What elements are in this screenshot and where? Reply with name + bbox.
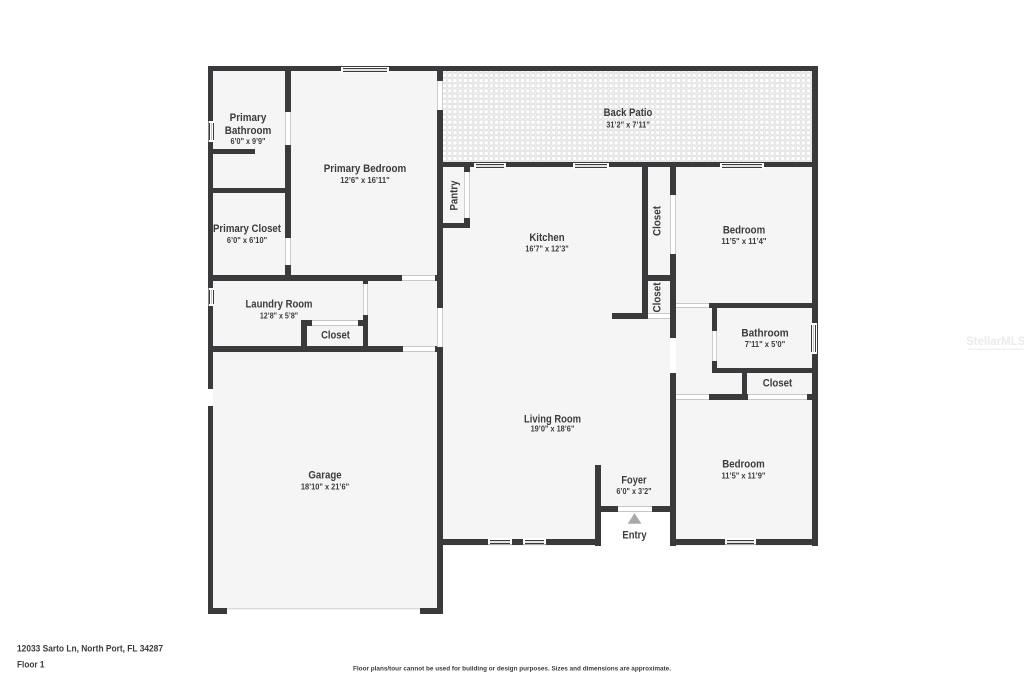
svg-text:Foyer: Foyer xyxy=(621,475,646,487)
svg-text:6’0" x 9’9": 6’0" x 9’9" xyxy=(231,137,266,146)
svg-text:Primary Bedroom: Primary Bedroom xyxy=(324,163,407,175)
svg-text:Bedroom: Bedroom xyxy=(723,225,765,237)
svg-text:31’2" x 7’11": 31’2" x 7’11" xyxy=(606,121,650,130)
svg-text:Closet: Closet xyxy=(763,378,793,390)
svg-text:StellarMLS: StellarMLS xyxy=(966,336,1024,348)
svg-text:Bathroom: Bathroom xyxy=(741,328,788,340)
svg-text:Bathroom: Bathroom xyxy=(225,125,272,137)
svg-text:6’0" x 3’2": 6’0" x 3’2" xyxy=(616,487,651,496)
svg-text:12’8" x 5’8": 12’8" x 5’8" xyxy=(260,312,298,321)
svg-text:Pantry: Pantry xyxy=(448,180,460,210)
svg-text:Bedroom: Bedroom xyxy=(722,459,764,471)
svg-text:16’7" x 12’3": 16’7" x 12’3" xyxy=(525,245,569,254)
svg-text:7’11" x 5’0": 7’11" x 5’0" xyxy=(745,340,786,349)
svg-text:Kitchen: Kitchen xyxy=(529,232,564,244)
svg-text:Closet: Closet xyxy=(652,206,664,236)
svg-text:12033 Sarto Ln, North Port, FL: 12033 Sarto Ln, North Port, FL 34287 xyxy=(17,644,163,654)
svg-text:Closet: Closet xyxy=(321,330,350,342)
svg-text:Primary: Primary xyxy=(230,112,267,124)
svg-text:19’0" x 18’6": 19’0" x 18’6" xyxy=(531,425,575,434)
svg-text:Back Patio: Back Patio xyxy=(604,107,653,119)
svg-text:Laundry Room: Laundry Room xyxy=(246,299,313,311)
svg-text:11’5" x 11’4": 11’5" x 11’4" xyxy=(721,237,766,246)
svg-text:Closet: Closet xyxy=(652,282,664,312)
svg-text:18’10" x 21’6": 18’10" x 21’6" xyxy=(301,483,349,492)
svg-text:6’0" x 6’10": 6’0" x 6’10" xyxy=(227,236,267,245)
svg-text:Entry: Entry xyxy=(622,530,646,542)
svg-text:Floor plans/tour cannot be use: Floor plans/tour cannot be used for buil… xyxy=(353,666,671,673)
svg-text:Primary Closet: Primary Closet xyxy=(213,223,281,235)
svg-text:Floor 1: Floor 1 xyxy=(17,659,45,669)
svg-text:11’5" x 11’9": 11’5" x 11’9" xyxy=(722,472,766,481)
svg-text:12’6" x 16’11": 12’6" x 16’11" xyxy=(340,176,390,185)
svg-text:Garage: Garage xyxy=(308,470,341,482)
